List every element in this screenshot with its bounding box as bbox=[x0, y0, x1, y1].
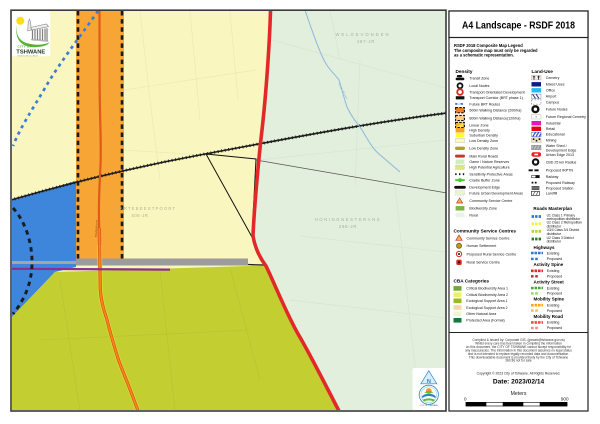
svg-text:Ecological Support Area 1: Ecological Support Area 1 bbox=[466, 299, 507, 303]
svg-text:Existing: Existing bbox=[547, 304, 560, 308]
svg-text:CITY OF TSHWANE: CITY OF TSHWANE bbox=[420, 404, 439, 407]
svg-text:Low Density Zone: Low Density Zone bbox=[469, 147, 498, 151]
svg-text:506-JR: 506-JR bbox=[131, 213, 148, 218]
svg-text:266-JR: 266-JR bbox=[339, 224, 357, 229]
svg-text:Transport Orientated Developme: Transport Orientated Development bbox=[469, 90, 524, 94]
svg-text:Protected Area (Formal): Protected Area (Formal) bbox=[466, 319, 504, 323]
svg-text:Cradle Buffer Zone: Cradle Buffer Zone bbox=[469, 179, 499, 183]
svg-text:Future BRT Routes: Future BRT Routes bbox=[469, 102, 500, 106]
svg-text:Rural Service Centre: Rural Service Centre bbox=[467, 261, 500, 265]
svg-text:Sensitivity Protective Areas: Sensitivity Protective Areas bbox=[469, 173, 513, 177]
svg-text:Proposed: Proposed bbox=[547, 257, 562, 261]
svg-text:Urban Edge 2013: Urban Edge 2013 bbox=[546, 153, 574, 157]
svg-text:Community Service Centres: Community Service Centres bbox=[454, 229, 517, 234]
svg-text:Development Edge: Development Edge bbox=[546, 148, 577, 152]
svg-text:Educational: Educational bbox=[546, 133, 565, 137]
svg-text:Landfill: Landfill bbox=[546, 192, 558, 196]
svg-text:CITY OF: CITY OF bbox=[18, 45, 33, 49]
svg-text:Proposed: Proposed bbox=[547, 326, 562, 330]
svg-text:High Potential Agriculture: High Potential Agriculture bbox=[469, 166, 509, 170]
svg-text:Proposed: Proposed bbox=[547, 275, 562, 279]
svg-text:Proposed Rural Service Centre: Proposed Rural Service Centre bbox=[467, 252, 517, 256]
svg-text:N: N bbox=[427, 379, 431, 385]
svg-text:CBA Categories: CBA Categories bbox=[454, 279, 490, 284]
svg-text:Existing: Existing bbox=[547, 321, 560, 325]
svg-text:Suburban Density: Suburban Density bbox=[469, 133, 498, 137]
svg-text:Office: Office bbox=[546, 89, 555, 93]
svg-text:800m Walking Distance(120/ha): 800m Walking Distance(120/ha) bbox=[469, 116, 520, 120]
svg-text:Mobility Spine: Mobility Spine bbox=[534, 297, 565, 302]
svg-text:Future Nodes: Future Nodes bbox=[546, 108, 568, 112]
svg-text:Existing: Existing bbox=[547, 251, 560, 255]
svg-text:Proposed Station: Proposed Station bbox=[546, 186, 574, 190]
svg-text:Local Nodes: Local Nodes bbox=[469, 84, 489, 88]
svg-text:Railway: Railway bbox=[546, 175, 559, 179]
svg-text:Highways: Highways bbox=[534, 245, 556, 250]
svg-text:Mining: Mining bbox=[546, 138, 557, 142]
svg-text:Rural: Rural bbox=[469, 213, 478, 217]
svg-text:500m Walking Distance (200/ha): 500m Walking Distance (200/ha) bbox=[469, 109, 521, 113]
svg-text:Other Natural Area: Other Natural Area bbox=[466, 312, 496, 316]
svg-text:Retail: Retail bbox=[546, 127, 555, 131]
svg-text:A4 Landscape - RSDF 2018: A4 Landscape - RSDF 2018 bbox=[462, 20, 575, 32]
svg-text:Low Density Zone: Low Density Zone bbox=[469, 139, 498, 143]
svg-text:Airport: Airport bbox=[546, 95, 557, 99]
svg-text:Mixed Uses: Mixed Uses bbox=[546, 83, 565, 87]
svg-text:Transport Corridor (BRT phase: Transport Corridor (BRT phase 1) bbox=[469, 96, 522, 100]
svg-text:Proposed IRPTN: Proposed IRPTN bbox=[546, 169, 574, 173]
svg-text:Proposed: Proposed bbox=[547, 292, 562, 296]
svg-text:Human Settlement: Human Settlement bbox=[467, 244, 497, 248]
svg-text:Future Regional Cemetry: Future Regional Cemetry bbox=[546, 115, 586, 119]
svg-text:High Density: High Density bbox=[469, 129, 490, 133]
svg-text:Mobility Road: Mobility Road bbox=[534, 314, 564, 319]
svg-text:Cemetry: Cemetry bbox=[546, 76, 560, 80]
svg-text:Activity Street: Activity Street bbox=[534, 279, 565, 284]
svg-text:Proposed: Proposed bbox=[547, 309, 562, 313]
svg-text:HONINGNESTKRANS: HONINGNESTKRANS bbox=[315, 217, 381, 222]
svg-text:WELGEVONDEN: WELGEVONDEN bbox=[335, 32, 390, 37]
svg-text:Development Edge: Development Edge bbox=[469, 186, 500, 190]
svg-text:Community Service Centre: Community Service Centre bbox=[469, 199, 512, 203]
svg-text:Copyright © 2023 City of Tshwa: Copyright © 2023 City of Tshwane. All Ri… bbox=[477, 372, 561, 376]
svg-text:CBD 25 km Radius: CBD 25 km Radius bbox=[546, 160, 577, 164]
svg-text:Density: Density bbox=[456, 69, 473, 74]
svg-text:Date: 2023/02/14: Date: 2023/02/14 bbox=[493, 379, 545, 386]
svg-text:Strictly not for sale: Strictly not for sale bbox=[505, 359, 531, 363]
svg-text:IGNITING EXCELLENCE: IGNITING EXCELLENCE bbox=[18, 55, 39, 57]
svg-text:Critical Biodiversity Area 2: Critical Biodiversity Area 2 bbox=[466, 293, 508, 297]
svg-text:Existing: Existing bbox=[547, 286, 560, 290]
svg-text:Industrial: Industrial bbox=[546, 122, 561, 126]
svg-text:Main Rural Roads: Main Rural Roads bbox=[469, 155, 498, 159]
svg-text:487-JR: 487-JR bbox=[357, 39, 375, 44]
svg-text:Critical Biodiversity Area 1: Critical Biodiversity Area 1 bbox=[466, 287, 508, 291]
svg-text:900: 900 bbox=[561, 397, 569, 402]
svg-text:as a schematic representation.: as a schematic representation. bbox=[454, 53, 514, 58]
svg-text:Campus: Campus bbox=[546, 100, 560, 104]
svg-text:Proposed Railway: Proposed Railway bbox=[546, 181, 575, 185]
svg-text:Meters: Meters bbox=[511, 391, 527, 397]
svg-text:25: 25 bbox=[458, 102, 462, 106]
svg-text:Future Urban Development Areas: Future Urban Development Areas bbox=[469, 191, 523, 195]
svg-text:Land-Use: Land-Use bbox=[532, 69, 554, 74]
svg-text:Activity Spine: Activity Spine bbox=[534, 262, 564, 267]
svg-text:Transit Zone: Transit Zone bbox=[469, 76, 489, 80]
svg-text:Roads Masterplan: Roads Masterplan bbox=[533, 206, 572, 211]
svg-text:Existing: Existing bbox=[547, 269, 560, 273]
svg-text:Linear Zone: Linear Zone bbox=[469, 123, 488, 127]
svg-text:Game / Nature Reserves: Game / Nature Reserves bbox=[469, 160, 509, 164]
svg-text:0: 0 bbox=[464, 397, 467, 402]
svg-text:Ecological Support Area 2: Ecological Support Area 2 bbox=[466, 306, 507, 310]
svg-text:HARTEBEESTPOORT: HARTEBEESTPOORT bbox=[116, 206, 177, 211]
svg-text:Community Service Centre: Community Service Centre bbox=[467, 236, 510, 240]
svg-text:distributor: distributor bbox=[547, 240, 562, 244]
svg-text:Biodiversity Zone: Biodiversity Zone bbox=[469, 207, 497, 211]
